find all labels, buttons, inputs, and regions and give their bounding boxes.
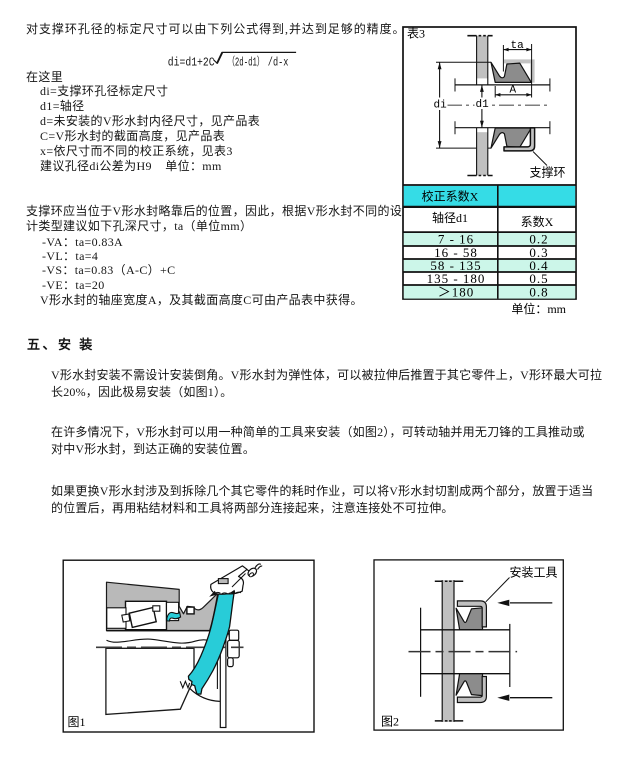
- svg-text:di: di: [434, 100, 448, 112]
- svg-text:A: A: [510, 85, 517, 97]
- svg-text:系数X: 系数X: [521, 214, 554, 229]
- svg-text:校正系数X: 校正系数X: [422, 189, 479, 204]
- svg-text:轴径d1: 轴径d1: [432, 210, 468, 225]
- svg-text:安装工具: 安装工具: [510, 565, 558, 580]
- svg-text:单位：mm: 单位：mm: [511, 301, 566, 316]
- svg-text:表3: 表3: [407, 27, 425, 41]
- svg-text:图1: 图1: [68, 715, 86, 729]
- svg-text:/d-x: /d-x: [268, 57, 289, 70]
- svg-text:＞180: ＞180: [438, 284, 475, 299]
- svg-text:（2d-d1）: （2d-d1）: [228, 56, 265, 70]
- svg-text:图2: 图2: [381, 715, 399, 729]
- svg-text:di=d1+2C: di=d1+2C: [168, 57, 215, 70]
- svg-text:0.8: 0.8: [529, 284, 548, 299]
- svg-text:支撑环: 支撑环: [530, 165, 566, 180]
- svg-text:ta: ta: [511, 40, 525, 52]
- svg-text:d1: d1: [476, 99, 490, 111]
